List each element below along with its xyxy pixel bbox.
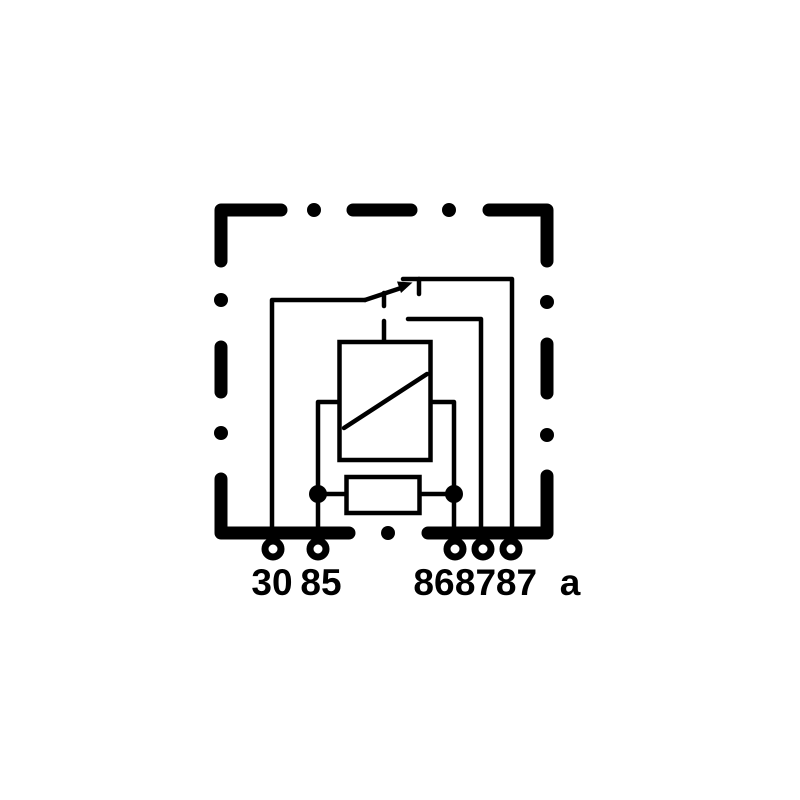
relay-wiring-diagram: 30 85 86 87 87 a — [0, 0, 800, 800]
housing-dot-left-2 — [214, 426, 228, 440]
resistor-box — [347, 477, 420, 513]
terminal-pins — [265, 541, 519, 557]
terminal-labels: 30 85 86 87 87 a — [251, 562, 580, 603]
housing-dot-bottom-gap — [381, 526, 395, 540]
wire-terminal-85 — [318, 402, 340, 531]
label-terminal-87: 87 — [455, 562, 496, 603]
housing-corner-top-right — [489, 210, 547, 261]
junction-dot-right — [445, 485, 463, 503]
pin-terminal-86 — [447, 541, 463, 557]
pin-terminal-30 — [265, 541, 281, 557]
housing-corner-top-left — [221, 210, 281, 261]
housing-dot-right-1 — [540, 295, 554, 309]
label-terminal-87a-suffix: a — [560, 562, 581, 603]
relay-diagram-canvas: 30 85 86 87 87 a — [0, 0, 800, 800]
housing-dot-top-2 — [442, 203, 456, 217]
label-terminal-87a-number: 87 — [496, 562, 537, 603]
pin-terminal-87 — [475, 541, 491, 557]
housing-dot-top-1 — [307, 203, 321, 217]
junction-dot-left — [309, 485, 327, 503]
wire-terminal-86 — [430, 402, 454, 531]
pin-terminal-87a — [503, 541, 519, 557]
relay-internal-circuit — [272, 279, 512, 531]
housing-corner-bottom-right — [428, 476, 547, 533]
switch-blade-arrowhead — [397, 282, 413, 294]
label-terminal-30: 30 — [251, 562, 292, 603]
housing-dot-left-1 — [214, 293, 228, 307]
housing-dot-right-2 — [540, 428, 554, 442]
label-terminal-85: 85 — [300, 562, 341, 603]
label-terminal-86: 86 — [413, 562, 454, 603]
pin-terminal-85 — [310, 541, 326, 557]
housing-corner-bottom-left — [221, 479, 349, 533]
